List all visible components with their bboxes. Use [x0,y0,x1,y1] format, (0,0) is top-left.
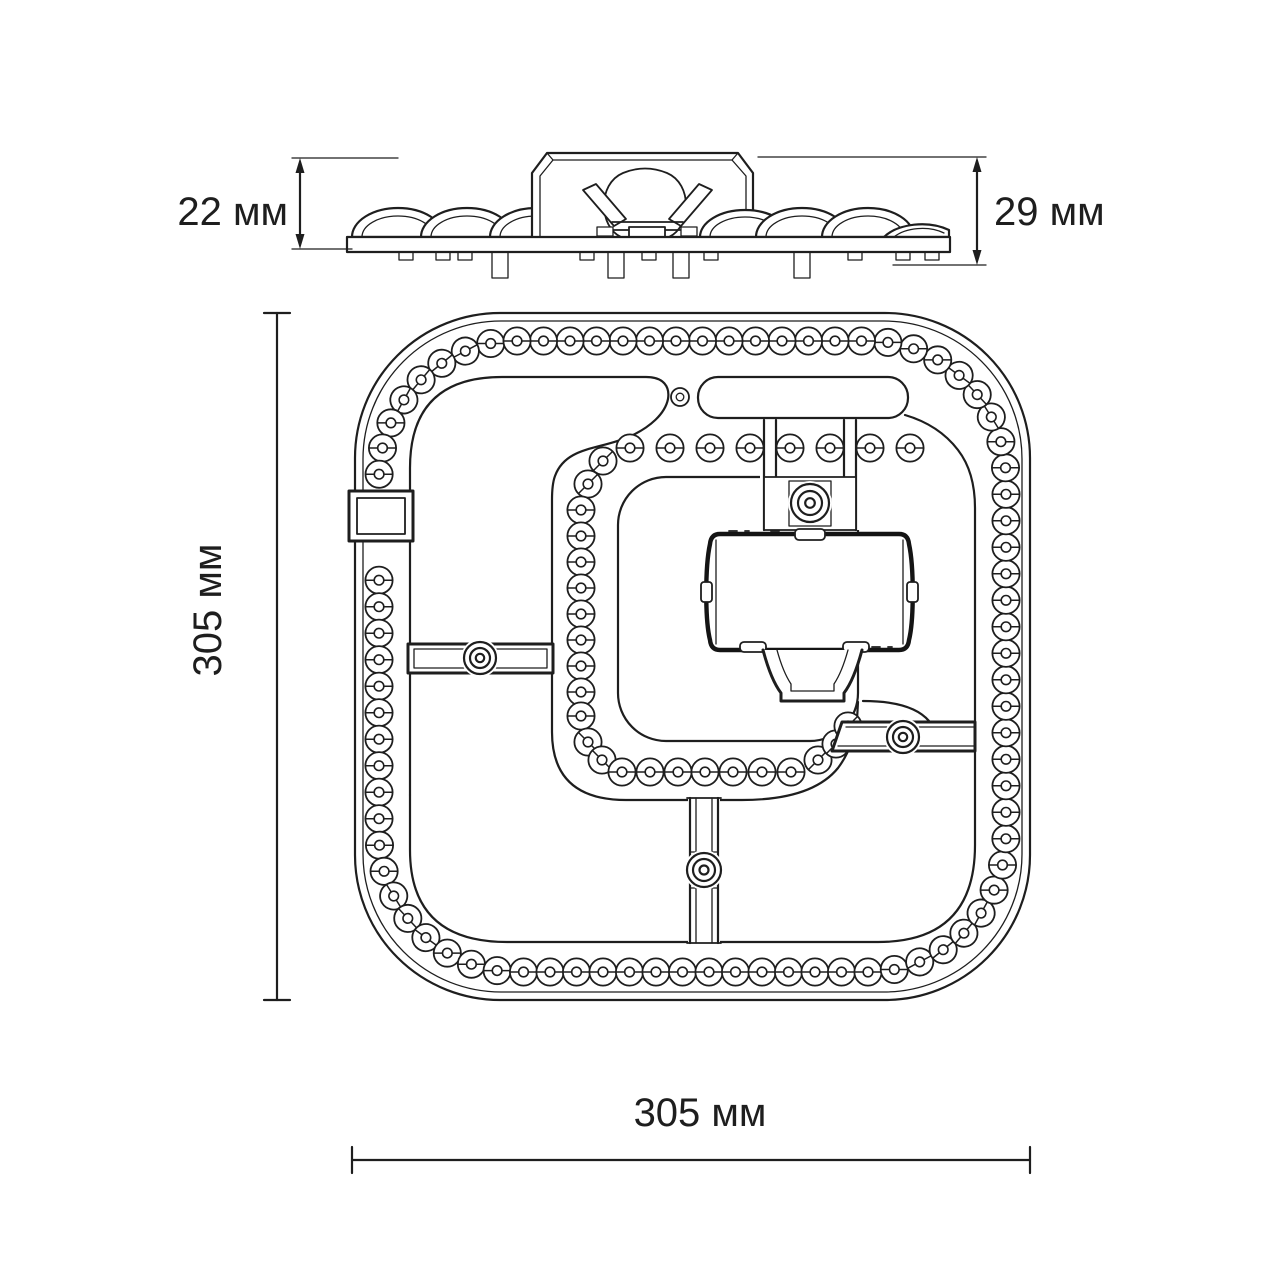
led-lens [736,434,763,461]
led-lens [768,327,795,354]
led-lens [366,461,393,488]
led-lens [715,327,742,354]
led-lens [695,958,722,985]
led-lens [775,958,802,985]
led-lens [369,434,396,461]
top-view [349,313,1030,1000]
led-lens [816,434,843,461]
led-lens [992,534,1019,561]
led-lens [567,496,594,523]
led-lens [828,958,855,985]
led-lens [742,327,769,354]
led-lens [567,548,594,575]
led-lens [642,958,669,985]
led-lens [371,858,398,885]
pcb-board-side [347,237,950,278]
right-bracket [832,718,975,756]
led-lens [992,507,1019,534]
led-lens [722,958,749,985]
led-lens [662,327,689,354]
led-lens [377,409,404,436]
led-lens [992,454,1019,481]
led-lens [567,702,594,729]
led-lens [563,958,590,985]
led-lens [567,626,594,653]
housing-tab-top [795,529,825,540]
dimension-label-22mm: 22 мм [177,190,288,234]
led-lens [636,327,663,354]
led-lens [365,620,392,647]
led-lens [981,877,1008,904]
led-lens [669,958,696,985]
mounting-pins [492,252,810,278]
board-feet [399,252,939,260]
led-lens [748,758,775,785]
housing-tab-right [907,582,918,602]
led-lens [992,746,1019,773]
led-lens [530,327,557,354]
bottom-bracket [684,797,724,944]
led-lens [992,772,1019,799]
led-lens [992,693,1019,720]
led-lens [458,951,485,978]
led-lens [748,958,775,985]
led-lens [567,522,594,549]
led-lens [365,593,392,620]
led-lens [848,327,875,354]
left-bracket [408,639,553,677]
dimension-label-29mm: 29 мм [994,190,1105,234]
led-lens [691,758,718,785]
led-lens [365,646,392,673]
led-lens [536,958,563,985]
led-lens [365,673,392,700]
dimension-label-width-305: 305 мм [634,1091,767,1135]
led-lens [881,956,908,983]
led-lens [365,805,392,832]
dimension-height: 305 мм [186,313,290,1000]
led-lens [434,940,461,967]
led-lens [583,327,610,354]
led-lens [795,327,822,354]
led-lens [609,327,636,354]
drawing-svg: 22 мм 29 мм [0,0,1280,1280]
side-view [347,153,950,278]
led-lens [992,666,1019,693]
led-lens [689,327,716,354]
led-lens [567,652,594,679]
led-lens [987,428,1014,455]
led-lens [567,574,594,601]
dimension-width: 305 мм [352,1091,1030,1173]
screw-right [884,718,922,756]
led-lens [608,758,635,785]
led-lens [365,779,392,806]
led-lens [503,327,530,354]
led-lens [477,330,504,357]
technical-drawing-canvas: 22 мм 29 мм [0,0,1280,1280]
led-lens [924,346,951,373]
led-lens [719,758,746,785]
led-lens [992,640,1019,667]
led-lens [556,327,583,354]
led-lens [992,481,1019,508]
top-slot [698,377,908,418]
led-lens [992,613,1019,640]
connector-housing-top [701,529,918,652]
led-lens [776,434,803,461]
small-screw-hole [671,388,689,406]
led-lens [777,758,804,785]
led-lens [616,434,643,461]
led-lens [992,587,1019,614]
led-lens [616,958,643,985]
led-lens [900,335,927,362]
led-lens [992,825,1019,852]
led-lens [365,752,392,779]
led-lens [896,434,923,461]
led-lens [989,851,1016,878]
led-lens [656,434,683,461]
housing-tab-left [701,582,712,602]
led-lens [992,799,1019,826]
lens-domes-right [700,208,949,237]
led-lens [801,958,828,985]
screw-top [788,481,832,525]
led-lens [874,329,901,356]
cable-funnel [763,650,862,701]
led-lens [567,600,594,627]
led-lens [589,958,616,985]
dimension-label-height-305: 305 мм [186,544,230,677]
led-lens [854,958,881,985]
led-lens [365,699,392,726]
led-lens [856,434,883,461]
led-lens [992,719,1019,746]
led-lens [510,958,537,985]
led-lens [664,758,691,785]
left-connector-pad [349,491,413,541]
screw-bottom [684,850,724,890]
led-lens [696,434,723,461]
led-lens [484,957,511,984]
led-lens [821,327,848,354]
led-lens [636,758,663,785]
led-lens [366,832,393,859]
led-lens [365,567,392,594]
led-lens [365,726,392,753]
screw-left [461,639,499,677]
led-lens [992,560,1019,587]
